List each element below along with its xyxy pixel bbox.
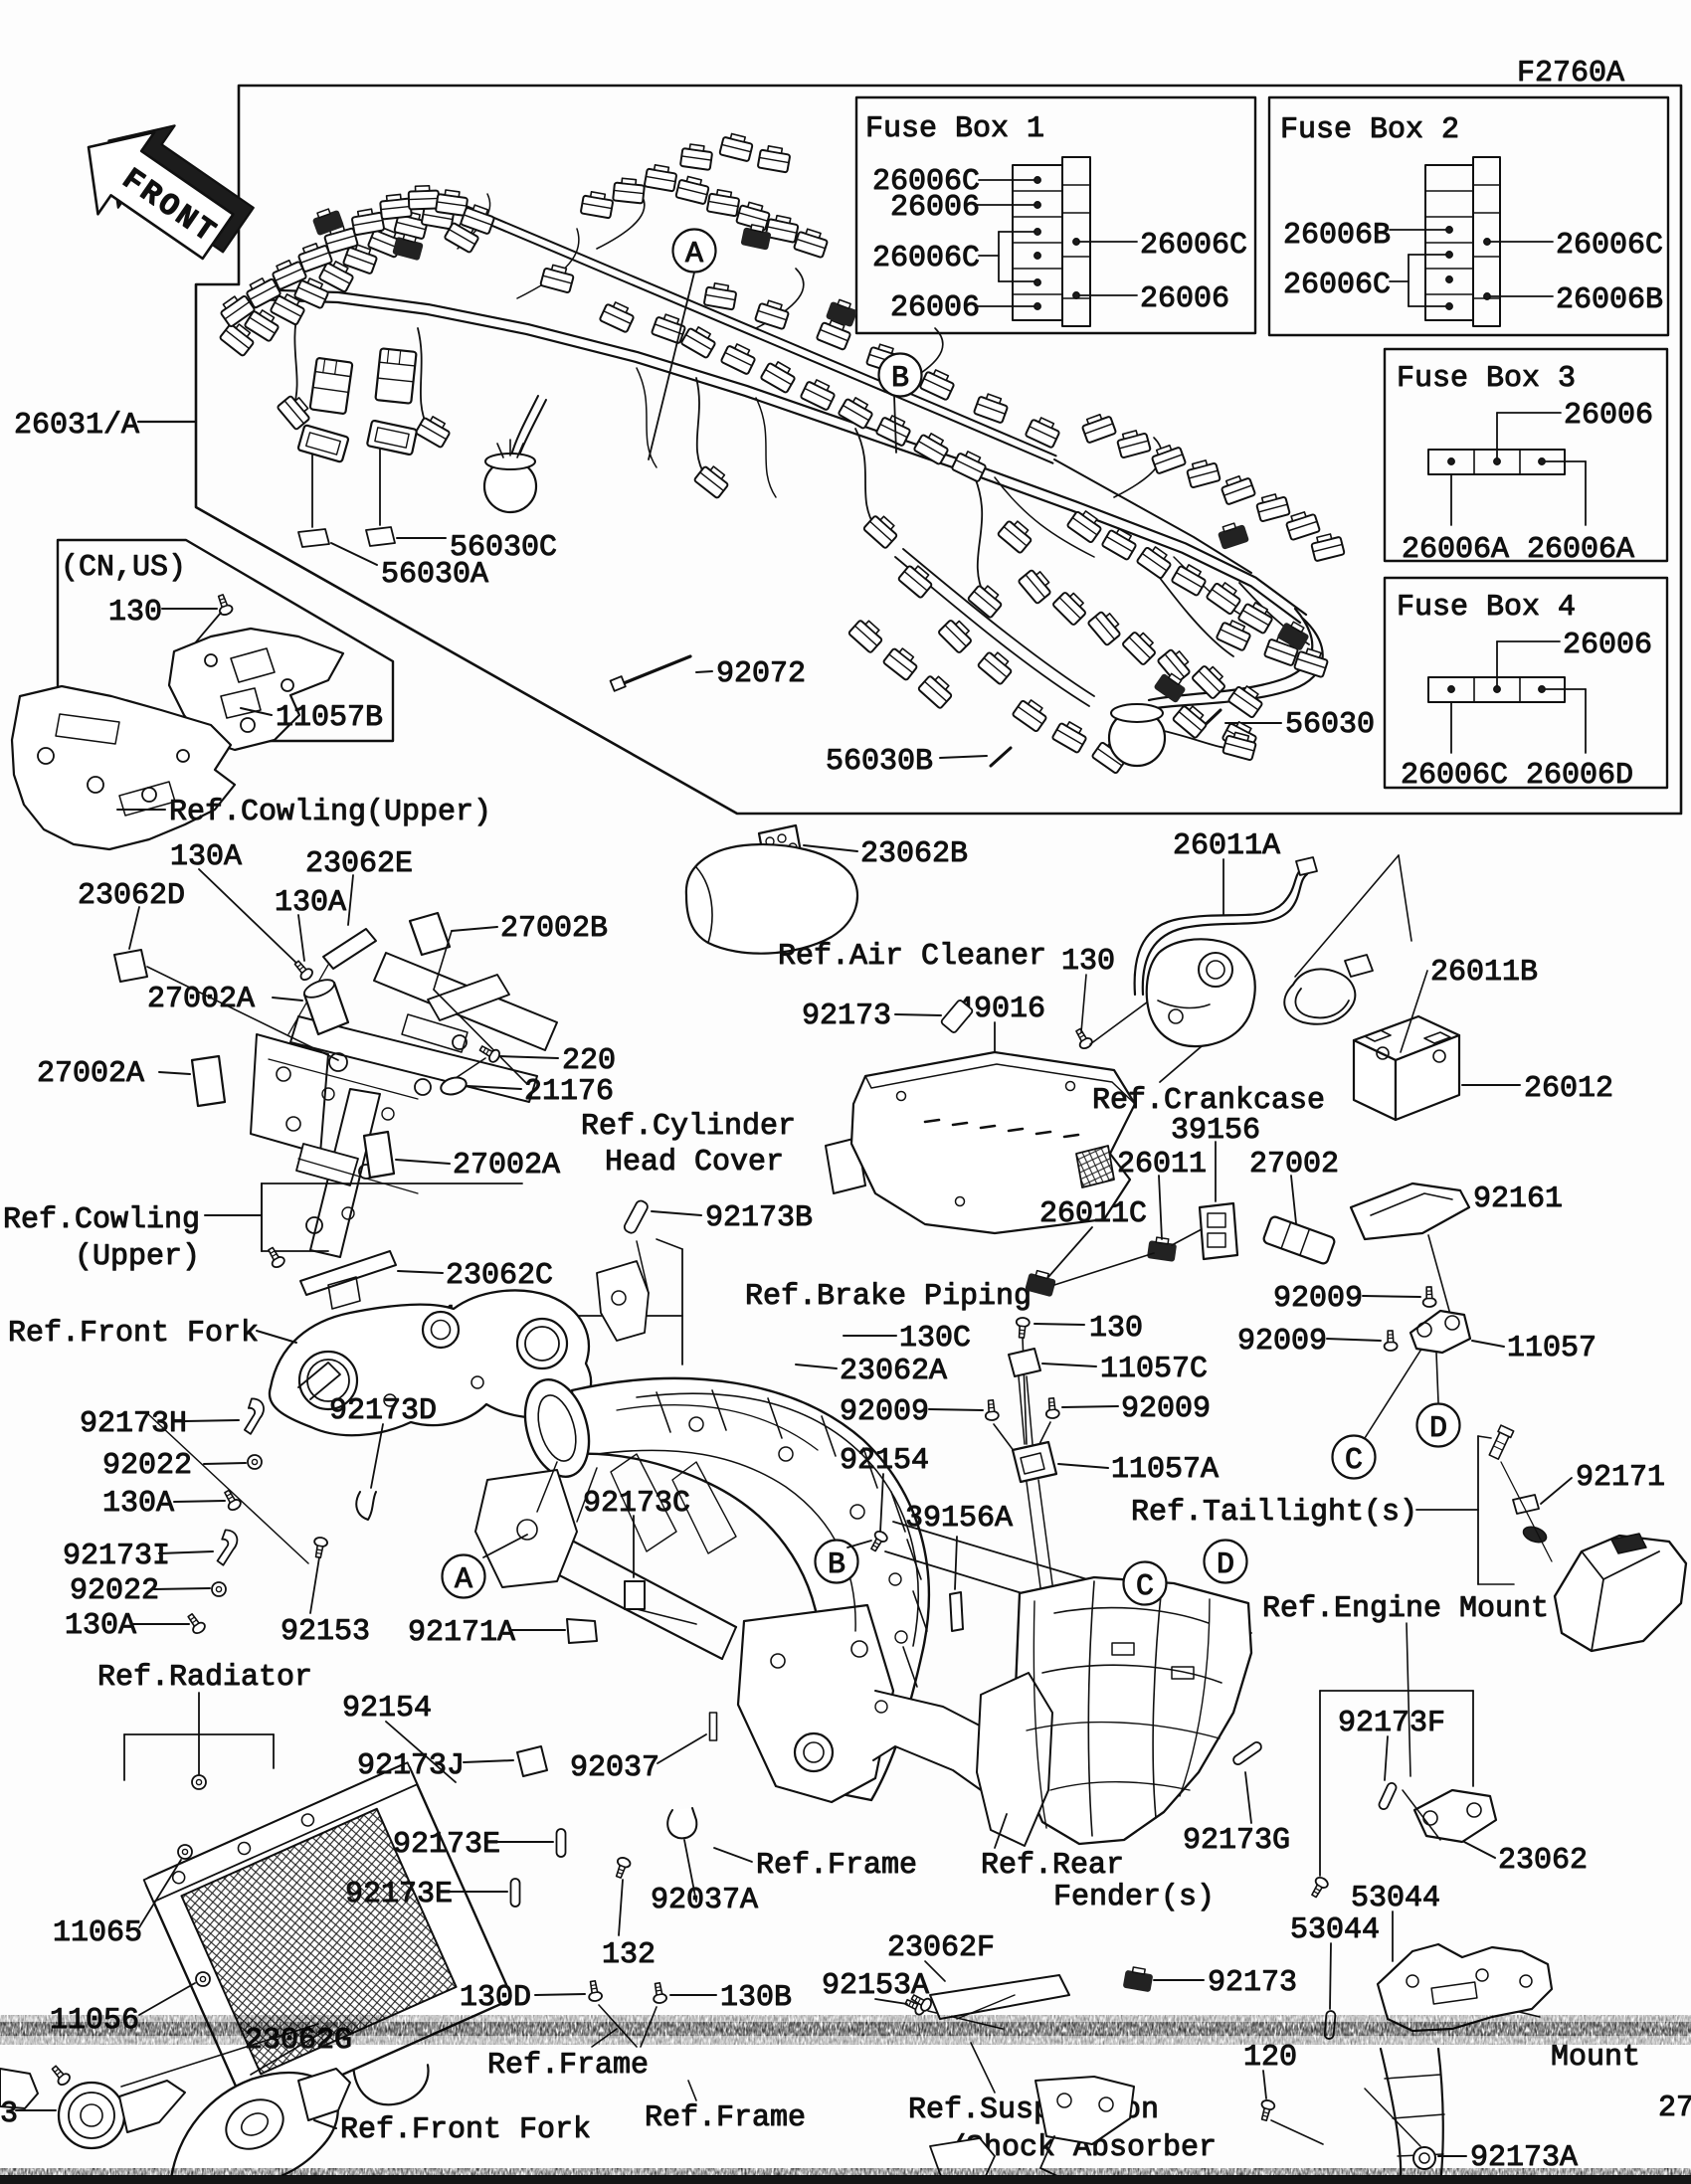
svg-text:92154: 92154	[840, 1444, 929, 1478]
svg-text:53044: 53044	[1351, 1882, 1440, 1915]
svg-text:27002B: 27002B	[500, 912, 608, 946]
svg-text:92037A: 92037A	[651, 1884, 758, 1917]
svg-text:92173B: 92173B	[705, 1201, 813, 1235]
svg-text:Ref.Front Fork: Ref.Front Fork	[340, 2113, 591, 2147]
svg-text:130A: 130A	[65, 1609, 136, 1643]
svg-text:26006C: 26006C	[872, 242, 980, 275]
svg-text:92009: 92009	[840, 1395, 929, 1429]
svg-text:26011C: 26011C	[1039, 1197, 1147, 1231]
svg-text:Fuse Box 2: Fuse Box 2	[1280, 113, 1459, 147]
svg-text:Ref.Rear: Ref.Rear	[981, 1849, 1124, 1883]
svg-text:92072: 92072	[716, 657, 806, 691]
svg-text:27002A: 27002A	[37, 1057, 144, 1091]
svg-text:26011: 26011	[1117, 1148, 1207, 1182]
svg-text:130: 130	[1061, 945, 1115, 979]
svg-text:26011A: 26011A	[1173, 829, 1280, 863]
svg-text:120: 120	[1243, 2041, 1297, 2075]
svg-text:26006C: 26006C	[1556, 229, 1663, 263]
svg-text:3: 3	[0, 2097, 18, 2131]
svg-text:92173D: 92173D	[329, 1394, 437, 1428]
svg-text:26006C: 26006C	[1283, 269, 1391, 302]
svg-text:92173: 92173	[802, 1000, 891, 1033]
svg-text:92173I: 92173I	[63, 1540, 170, 1573]
svg-text:26006A 26006A: 26006A 26006A	[1402, 533, 1634, 567]
svg-text:26006C 26006D: 26006C 26006D	[1401, 759, 1633, 793]
svg-text:56030A: 56030A	[381, 558, 488, 592]
svg-text:(Upper): (Upper)	[75, 1240, 200, 1274]
svg-text:Mount: Mount	[1551, 2041, 1640, 2075]
svg-text:Ref.Frame: Ref.Frame	[645, 2101, 806, 2135]
svg-text:92173: 92173	[1208, 1966, 1297, 2000]
svg-text:26006: 26006	[1563, 629, 1652, 662]
svg-text:11057B: 11057B	[276, 701, 383, 735]
svg-text:D: D	[1217, 1548, 1234, 1582]
svg-text:A: A	[685, 238, 703, 272]
svg-text:130: 130	[1089, 1312, 1143, 1346]
svg-text:D: D	[1429, 1412, 1447, 1446]
svg-text:Fuse Box 1: Fuse Box 1	[865, 112, 1044, 146]
svg-text:26011B: 26011B	[1430, 956, 1538, 990]
svg-text:27002A: 27002A	[453, 1149, 560, 1183]
svg-text:92161: 92161	[1473, 1183, 1563, 1216]
svg-text:130: 130	[108, 596, 162, 630]
svg-text:Ref.Cylinder: Ref.Cylinder	[581, 1110, 796, 1144]
svg-text:11057: 11057	[1507, 1332, 1597, 1365]
svg-text:92173E: 92173E	[393, 1828, 500, 1862]
svg-text:27003: 27003	[1658, 2092, 1691, 2125]
svg-text:C: C	[1136, 1570, 1154, 1604]
svg-text:26006: 26006	[890, 191, 980, 225]
svg-text:27002: 27002	[1249, 1148, 1339, 1182]
svg-text:Ref.Engine Mount: Ref.Engine Mount	[1262, 1592, 1549, 1626]
svg-text:23062: 23062	[1498, 1844, 1588, 1878]
svg-text:92173F: 92173F	[1338, 1707, 1445, 1740]
svg-text:23062C: 23062C	[446, 1259, 553, 1293]
svg-text:26006C: 26006C	[1140, 229, 1247, 263]
svg-text:39156A: 39156A	[905, 1502, 1013, 1536]
svg-text:220: 220	[562, 1044, 616, 1078]
svg-text:26006B: 26006B	[1556, 283, 1663, 317]
svg-text:92009: 92009	[1273, 1282, 1363, 1316]
svg-text:56030: 56030	[1285, 708, 1375, 742]
svg-text:(CN,US): (CN,US)	[61, 551, 186, 585]
svg-text:23062D: 23062D	[78, 879, 185, 913]
svg-text:Ref.Front Fork: Ref.Front Fork	[8, 1317, 259, 1351]
svg-text:130A: 130A	[170, 840, 242, 874]
svg-text:130A: 130A	[275, 886, 346, 920]
svg-text:130C: 130C	[899, 1322, 971, 1356]
svg-text:92022: 92022	[102, 1449, 192, 1483]
svg-text:26031/A: 26031/A	[14, 409, 139, 443]
svg-text:56030B: 56030B	[826, 745, 933, 779]
svg-text:A: A	[455, 1563, 472, 1597]
svg-text:21176: 21176	[524, 1075, 614, 1109]
svg-text:92173C: 92173C	[583, 1487, 690, 1521]
svg-text:Ref.Air Cleaner: Ref.Air Cleaner	[778, 940, 1046, 974]
svg-text:132: 132	[602, 1938, 656, 1972]
svg-text:92173G: 92173G	[1183, 1824, 1290, 1858]
svg-text:26006: 26006	[1564, 399, 1653, 433]
svg-text:Fuse Box 3: Fuse Box 3	[1397, 362, 1576, 396]
svg-text:130B: 130B	[720, 1981, 792, 2015]
svg-text:92009: 92009	[1237, 1325, 1327, 1359]
svg-text:B: B	[891, 362, 909, 396]
svg-text:Ref.Frame: Ref.Frame	[756, 1849, 917, 1883]
svg-text:F2760A: F2760A	[1517, 57, 1624, 91]
svg-text:26006: 26006	[890, 291, 980, 325]
svg-text:Ref.Brake Piping: Ref.Brake Piping	[745, 1280, 1032, 1314]
svg-text:92009: 92009	[1121, 1392, 1211, 1426]
svg-text:11057A: 11057A	[1111, 1453, 1219, 1487]
svg-text:Head Cover: Head Cover	[605, 1146, 784, 1180]
svg-text:92173J: 92173J	[357, 1749, 465, 1783]
svg-text:130A: 130A	[102, 1487, 174, 1521]
svg-text:Ref.Radiator: Ref.Radiator	[97, 1661, 312, 1695]
svg-text:27002A: 27002A	[147, 983, 255, 1016]
svg-text:Ref.Frame: Ref.Frame	[487, 2049, 649, 2083]
svg-text:26006B: 26006B	[1283, 219, 1391, 253]
svg-text:Fender(s): Fender(s)	[1053, 1881, 1215, 1914]
svg-text:26006: 26006	[1140, 282, 1229, 316]
svg-text:92171: 92171	[1576, 1461, 1665, 1495]
svg-text:11065: 11065	[53, 1916, 142, 1950]
svg-text:92154: 92154	[342, 1692, 432, 1726]
svg-text:Fuse Box 4: Fuse Box 4	[1397, 591, 1576, 625]
svg-text:92022: 92022	[70, 1574, 159, 1608]
svg-text:23062B: 23062B	[860, 837, 968, 871]
svg-text:23062E: 23062E	[305, 847, 413, 881]
svg-text:53044: 53044	[1290, 1913, 1380, 1947]
svg-text:Ref.Crankcase: Ref.Crankcase	[1092, 1084, 1325, 1118]
svg-text:130D: 130D	[460, 1981, 531, 2015]
svg-text:92171A: 92171A	[408, 1616, 515, 1650]
svg-text:11057C: 11057C	[1100, 1353, 1208, 1386]
svg-text:23062F: 23062F	[887, 1931, 995, 1965]
svg-text:Ref.Cowling(Upper): Ref.Cowling(Upper)	[169, 796, 491, 829]
svg-text:Ref.Cowling: Ref.Cowling	[3, 1203, 200, 1237]
svg-text:B: B	[828, 1548, 845, 1582]
svg-text:26012: 26012	[1524, 1072, 1613, 1106]
svg-text:92037: 92037	[570, 1751, 659, 1785]
svg-text:Ref.Taillight(s): Ref.Taillight(s)	[1131, 1496, 1417, 1530]
svg-text:92153: 92153	[281, 1615, 370, 1649]
svg-text:92173E: 92173E	[345, 1878, 453, 1911]
svg-text:C: C	[1345, 1444, 1363, 1478]
svg-text:23062A: 23062A	[840, 1355, 947, 1388]
